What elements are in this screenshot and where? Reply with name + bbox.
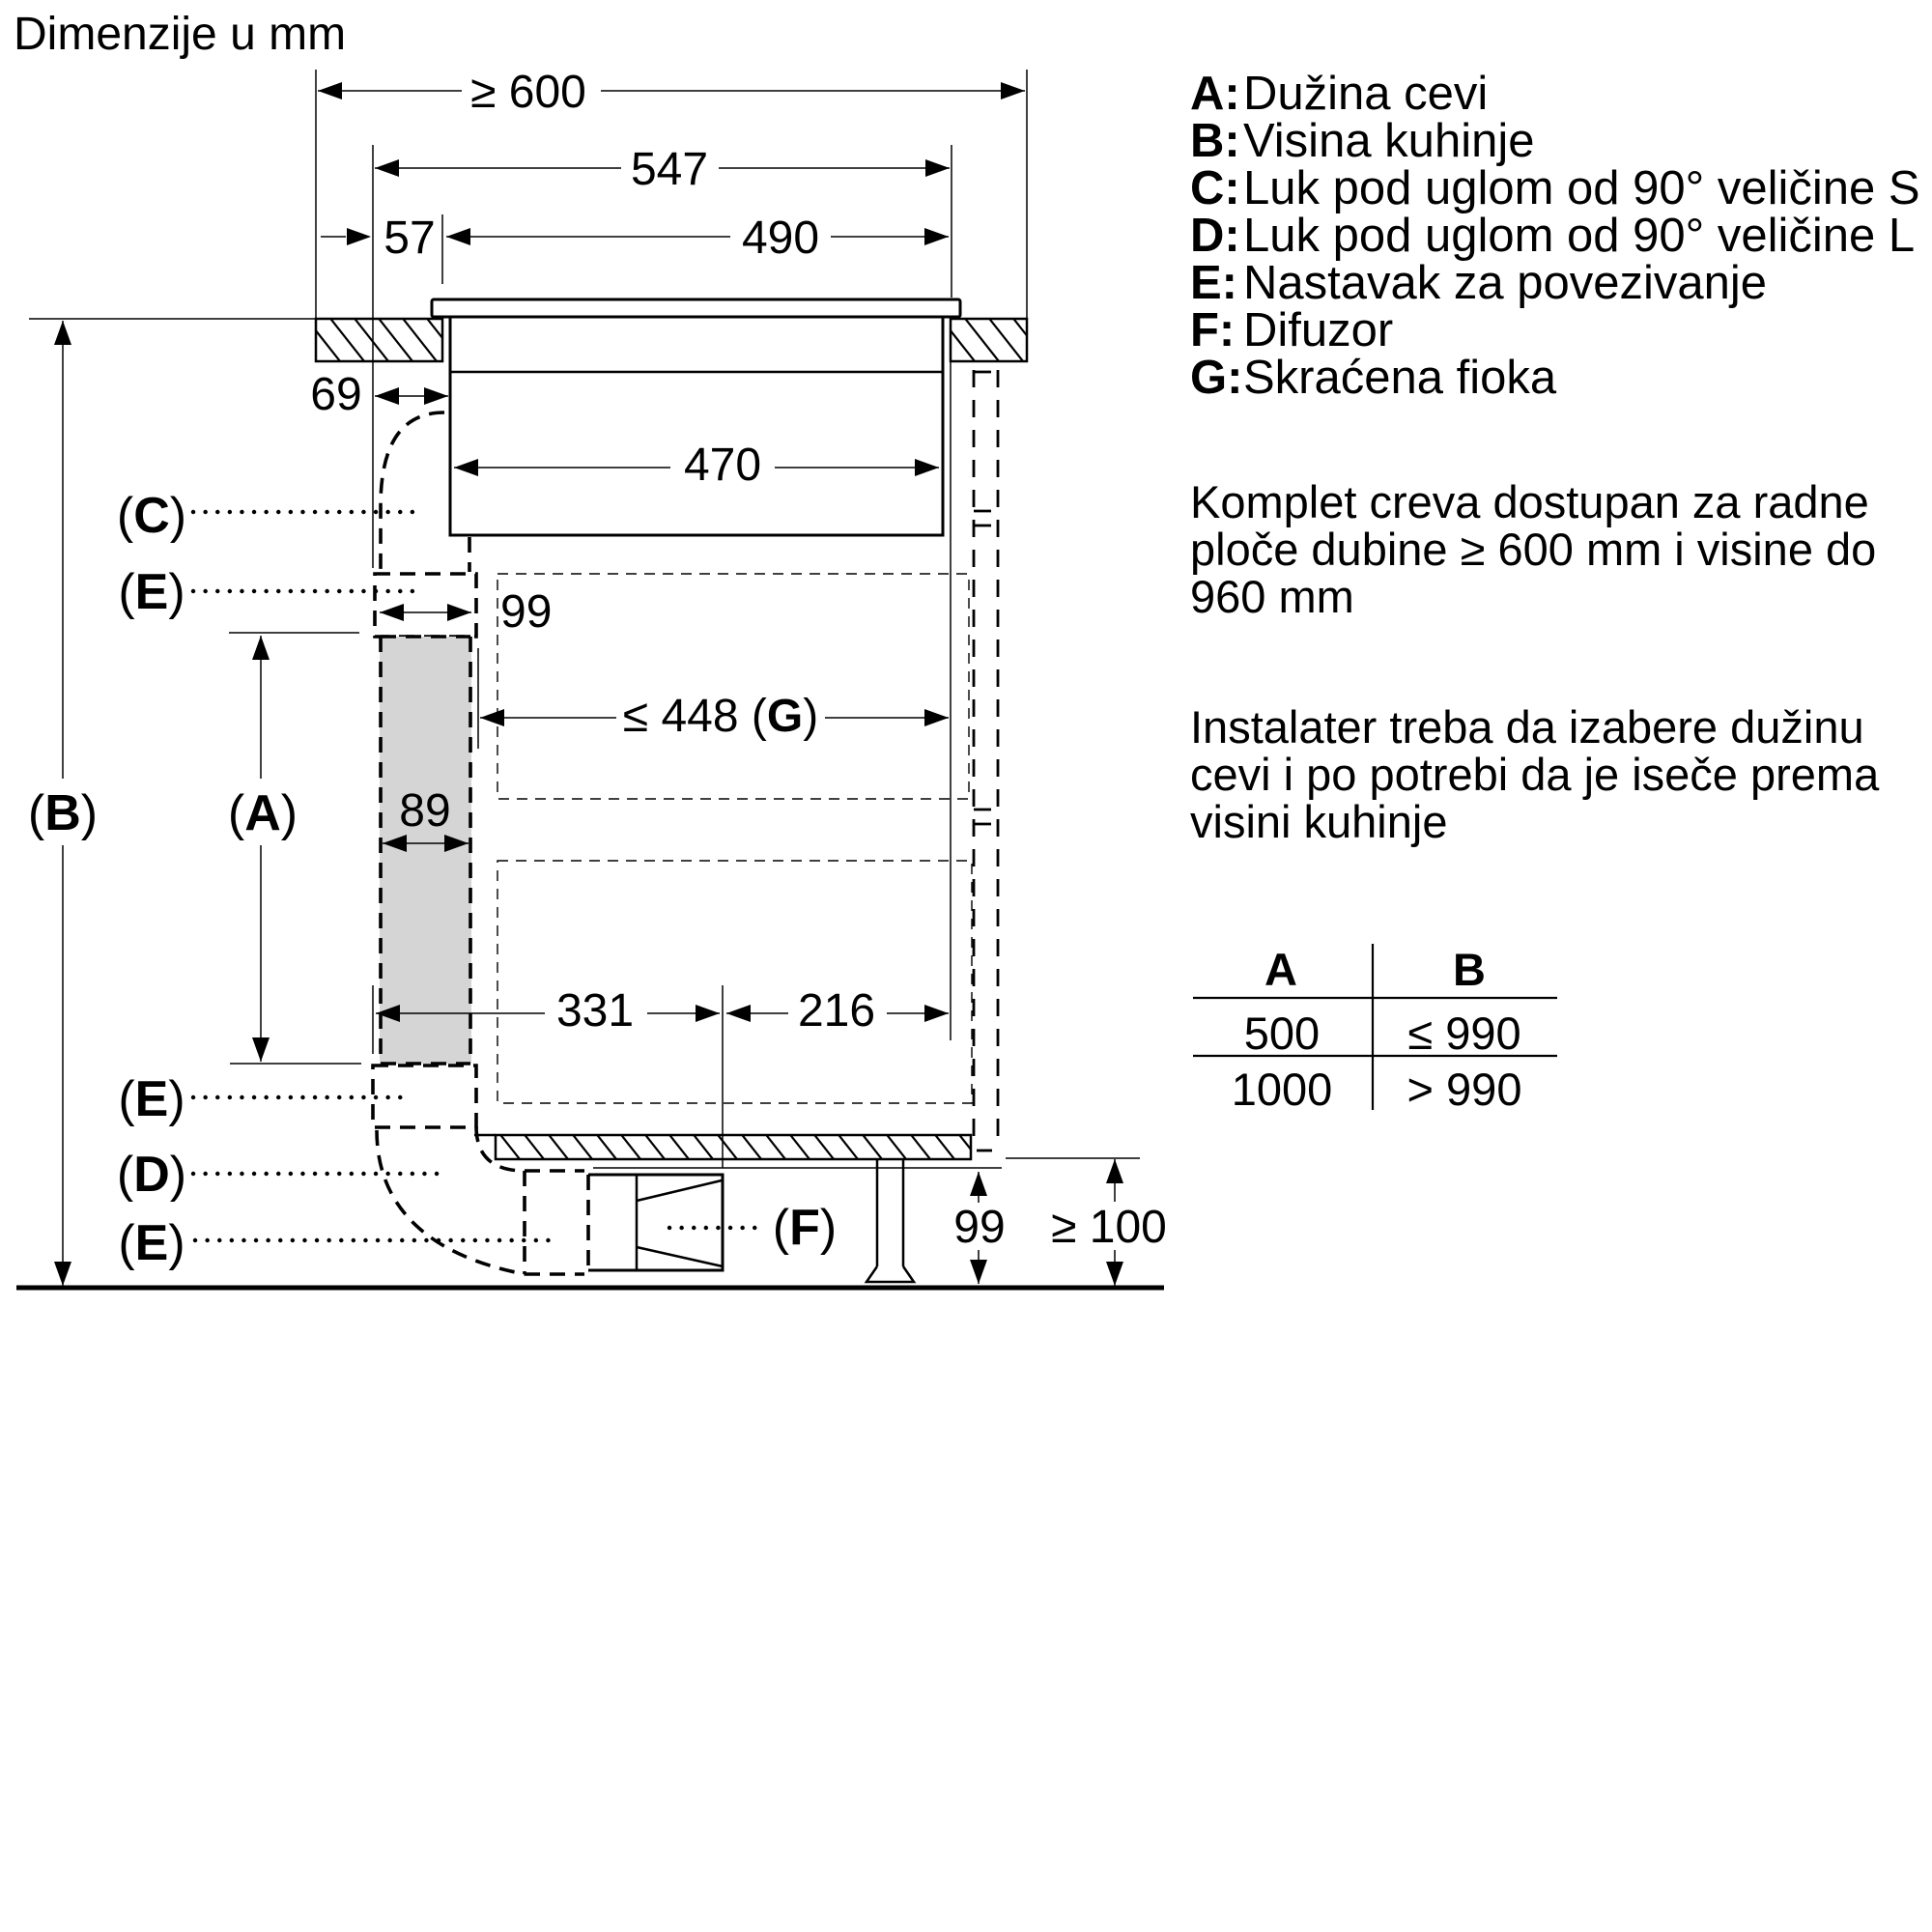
svg-text:99: 99 [500, 586, 552, 638]
svg-text:(A): (A) [228, 785, 298, 841]
svg-text:547: 547 [631, 144, 708, 195]
svg-text:Dimenzije u mm: Dimenzije u mm [14, 9, 346, 60]
svg-text:F:: F: [1190, 304, 1235, 356]
svg-text:490: 490 [742, 213, 819, 264]
svg-text:Luk pod uglom od 90° veličine: Luk pod uglom od 90° veličine S [1243, 162, 1920, 214]
svg-text:D:: D: [1190, 210, 1240, 262]
svg-text:G:: G: [1190, 352, 1242, 404]
svg-text:(F): (F) [773, 1200, 837, 1256]
svg-text:(D): (D) [117, 1147, 186, 1203]
svg-text:Luk pod uglom od 90° veličine: Luk pod uglom od 90° veličine L [1243, 210, 1915, 262]
svg-text:(E): (E) [118, 1215, 185, 1271]
svg-text:C:: C: [1190, 162, 1240, 214]
svg-text:(B): (B) [28, 785, 98, 841]
svg-text:cevi i po potrebi da je iseče: cevi i po potrebi da je iseče prema [1190, 749, 1880, 800]
svg-text:visini kuhinje: visini kuhinje [1190, 796, 1447, 847]
svg-text:≥ 600: ≥ 600 [470, 67, 586, 118]
svg-text:Instalater treba da izabere du: Instalater treba da izabere dužinu [1190, 701, 1864, 753]
svg-text:69: 69 [310, 369, 361, 420]
svg-text:≤ 990: ≤ 990 [1407, 1008, 1520, 1059]
svg-text:99: 99 [953, 1202, 1005, 1253]
svg-text:≥ 100: ≥ 100 [1051, 1202, 1167, 1253]
svg-text:57: 57 [384, 213, 435, 264]
svg-text:89: 89 [399, 785, 450, 837]
svg-text:Dužina cevi: Dužina cevi [1243, 68, 1488, 120]
svg-text:> 990: > 990 [1407, 1064, 1522, 1115]
svg-text:≤ 448 (G): ≤ 448 (G) [623, 691, 818, 742]
svg-text:(E): (E) [118, 1071, 185, 1127]
svg-text:Visina kuhinje: Visina kuhinje [1243, 115, 1534, 167]
svg-text:ploče dubine ≥ 600 mm i visine: ploče dubine ≥ 600 mm i visine do [1190, 524, 1876, 575]
svg-text:331: 331 [556, 985, 634, 1037]
svg-text:(C): (C) [117, 488, 186, 544]
svg-text:Difuzor: Difuzor [1243, 304, 1393, 356]
svg-text:B: B [1453, 944, 1486, 995]
svg-text:470: 470 [684, 440, 761, 491]
svg-text:Komplet creva dostupan za radn: Komplet creva dostupan za radne [1190, 476, 1869, 527]
svg-text:E:: E: [1190, 257, 1237, 309]
svg-text:500: 500 [1244, 1008, 1320, 1059]
svg-text:216: 216 [798, 985, 875, 1037]
svg-text:Skraćena fioka: Skraćena fioka [1243, 352, 1557, 404]
svg-text:960 mm: 960 mm [1190, 571, 1354, 622]
svg-text:B:: B: [1190, 115, 1240, 167]
svg-text:A: A [1264, 944, 1297, 995]
svg-text:1000: 1000 [1232, 1064, 1333, 1115]
svg-text:A:: A: [1190, 68, 1240, 120]
svg-text:(E): (E) [118, 564, 185, 620]
svg-text:Nastavak za povezivanje: Nastavak za povezivanje [1243, 257, 1767, 309]
